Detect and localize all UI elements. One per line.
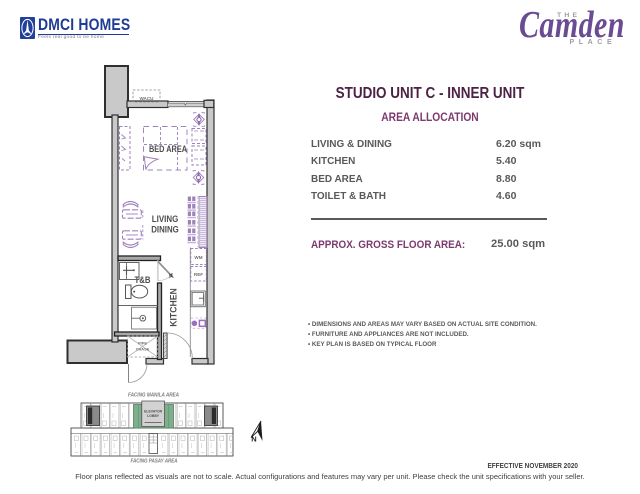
- svg-text:WM: WM: [194, 255, 202, 260]
- svg-text:WACU: WACU: [139, 96, 154, 101]
- svg-text:ELEVATOR: ELEVATOR: [144, 410, 162, 414]
- svg-text:T&B: T&B: [135, 275, 151, 285]
- svg-text:CHASE: CHASE: [136, 347, 150, 352]
- svg-text:BED AREA: BED AREA: [149, 144, 187, 154]
- svg-text:FACING MANILA AREA: FACING MANILA AREA: [128, 392, 179, 398]
- svg-text:DINING: DINING: [151, 224, 179, 234]
- svg-text:KITCHEN: KITCHEN: [168, 288, 179, 327]
- svg-text:FACING PASAY AREA: FACING PASAY AREA: [131, 458, 178, 464]
- svg-text:REF: REF: [194, 272, 203, 277]
- svg-text:LOBBY: LOBBY: [147, 414, 160, 418]
- svg-text:PIPE: PIPE: [138, 341, 147, 346]
- svg-text:N: N: [251, 435, 256, 444]
- svg-text:LIVING: LIVING: [152, 214, 179, 224]
